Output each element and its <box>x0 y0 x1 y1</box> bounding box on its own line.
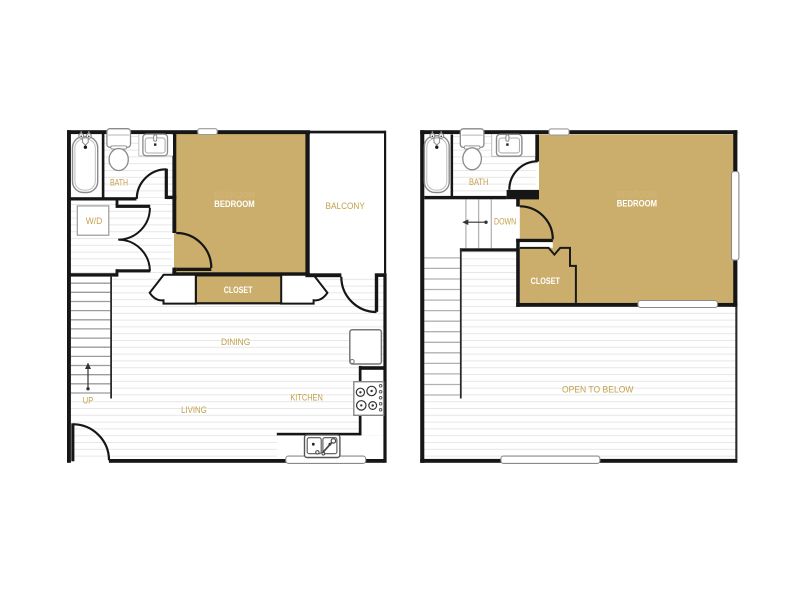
svg-text:UP: UP <box>83 396 93 406</box>
svg-text:BALCONY: BALCONY <box>326 201 365 211</box>
svg-text:DINING: DINING <box>221 337 250 347</box>
svg-text:DOWN: DOWN <box>494 216 516 226</box>
svg-text:BATH: BATH <box>469 177 488 187</box>
svg-text:W/D: W/D <box>86 216 103 226</box>
svg-text:BEDROOM: BEDROOM <box>214 199 254 210</box>
svg-text:CLOSET: CLOSET <box>224 285 253 295</box>
svg-text:LIVING: LIVING <box>181 405 207 415</box>
svg-text:OPEN TO BELOW: OPEN TO BELOW <box>562 384 634 394</box>
svg-text:KITCHEN: KITCHEN <box>290 392 323 402</box>
svg-text:BEDROOM: BEDROOM <box>617 199 657 210</box>
svg-text:BATH: BATH <box>110 177 128 187</box>
svg-text:CLOSET: CLOSET <box>531 276 561 286</box>
